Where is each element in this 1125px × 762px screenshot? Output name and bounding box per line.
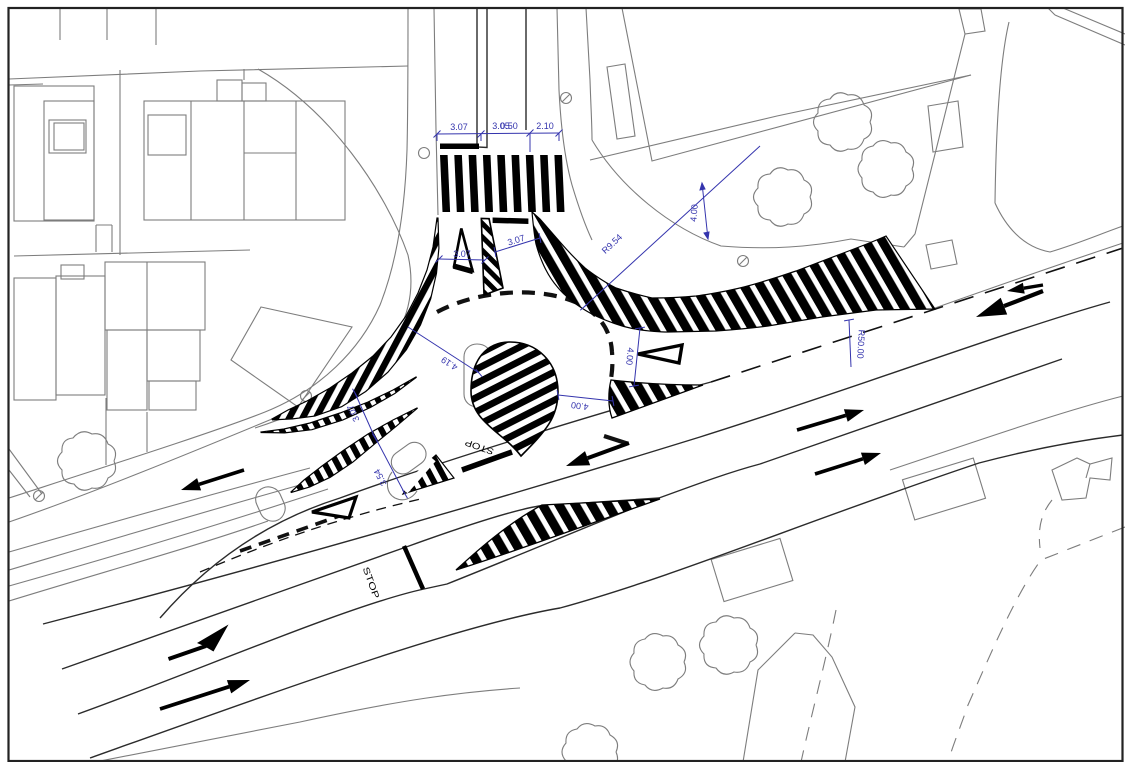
svg-text:4.00: 4.00 <box>624 347 636 365</box>
svg-text:4.00: 4.00 <box>688 204 699 222</box>
svg-text:4.00: 4.00 <box>570 400 589 412</box>
svg-text:R50.00: R50.00 <box>855 329 867 359</box>
svg-text:2.10: 2.10 <box>536 121 554 131</box>
svg-text:3.07: 3.07 <box>453 249 471 259</box>
svg-text:0.50: 0.50 <box>500 121 518 131</box>
svg-text:3.07: 3.07 <box>450 122 468 132</box>
